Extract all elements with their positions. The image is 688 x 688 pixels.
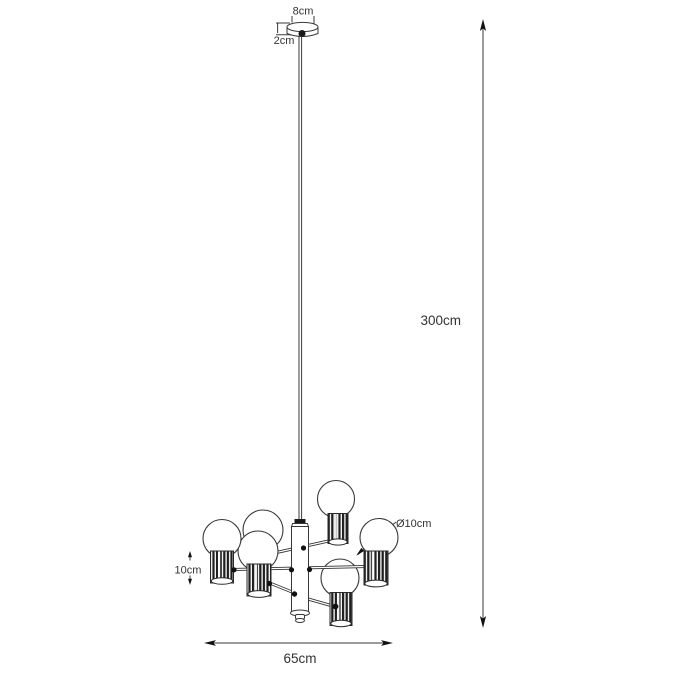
joint-dot — [301, 545, 306, 550]
joint-dot — [307, 567, 312, 572]
diameter-label: Ø10cm — [396, 518, 431, 530]
column-cap — [295, 519, 306, 524]
ceiling-canopy — [287, 22, 318, 37]
joint-dot — [289, 567, 294, 572]
socket-far-left — [211, 551, 234, 584]
bulb-top — [318, 481, 355, 518]
bulb-bottom — [321, 559, 359, 597]
suspension-cord — [299, 36, 302, 519]
drop-height-label: 300cm — [420, 313, 461, 328]
joint-dot — [292, 591, 297, 596]
socket-height-label: 10cm — [175, 565, 202, 577]
dimension-canopy-width: 8cm — [292, 5, 315, 25]
down-arrow-icon — [188, 579, 192, 585]
joint-dot — [231, 567, 236, 572]
dimension-fixture-width: 65cm — [204, 640, 393, 666]
joint-dot — [267, 581, 272, 586]
socket-right — [364, 551, 388, 587]
chandelier-technical-drawing: 8cm 2cm 300cm 65cm Ø10cm — [0, 0, 688, 688]
leader-arrow-icon — [356, 548, 364, 556]
fixture-width-label: 65cm — [283, 651, 316, 666]
canopy-height-label: 2cm — [274, 35, 295, 47]
cord-grip — [299, 30, 306, 37]
joint-dot — [333, 604, 339, 610]
dimension-socket-height: 10cm — [175, 551, 202, 585]
socket-front-left — [247, 564, 271, 597]
up-arrow-icon — [188, 551, 192, 557]
dimension-drawing-canvas: 8cm 2cm 300cm 65cm Ø10cm — [0, 0, 688, 688]
socket-top — [328, 514, 348, 546]
dimension-drop-height: 300cm — [420, 19, 486, 628]
canopy-width-label: 8cm — [293, 6, 314, 18]
column-finial — [291, 610, 310, 623]
socket-bottom — [330, 593, 352, 627]
